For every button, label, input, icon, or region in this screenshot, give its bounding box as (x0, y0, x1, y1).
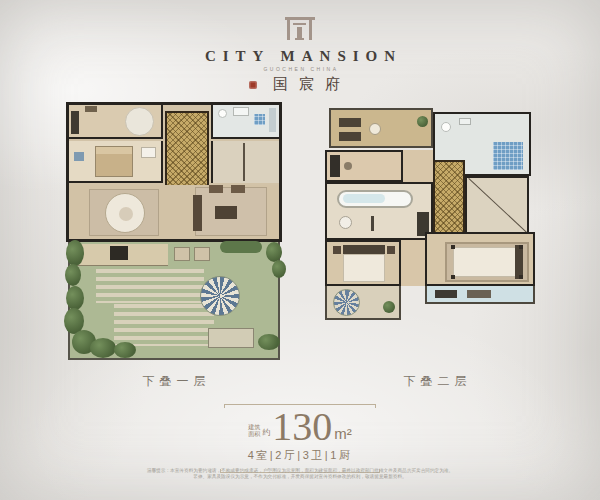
seal-icon (249, 81, 257, 89)
level2-staircase (465, 176, 529, 240)
daybed (95, 146, 133, 177)
shrub (258, 334, 280, 350)
armchair (231, 185, 245, 193)
armchair (209, 185, 223, 193)
canopy-post (451, 245, 455, 249)
area-prefix-line1: 建筑 (248, 424, 260, 431)
level1-staircase (211, 141, 279, 183)
bed-headboard (343, 245, 385, 254)
level2-balcony-left (325, 286, 401, 320)
lounger (339, 132, 361, 141)
level2-bedroom (325, 240, 401, 286)
level2-corridor (401, 240, 425, 286)
brand-gate-icon (0, 14, 600, 44)
desk (141, 147, 156, 158)
balcony-mat (435, 290, 457, 298)
level2-hallway (403, 150, 433, 182)
level2-master-bathroom (325, 182, 433, 240)
potted-plant (383, 301, 395, 313)
level2-terrace (329, 108, 433, 148)
chair (344, 162, 352, 170)
rooms-summary: 4室|2厅|3卫|1厨 (150, 448, 450, 463)
washbasin (459, 118, 471, 125)
shrub (66, 240, 84, 266)
level1-study-room (69, 141, 163, 183)
stair-rail (243, 143, 245, 181)
level1-bathroom (211, 105, 279, 139)
level1-living-dining-room (69, 185, 279, 239)
washbasin (339, 216, 352, 229)
nightstand (333, 246, 341, 254)
area-approx: 约 (262, 427, 270, 438)
level1-garden (68, 242, 280, 360)
plan-label-level1: 下叠一层 (66, 373, 282, 390)
floor-plan-level1 (66, 102, 282, 362)
shower-tile (254, 114, 265, 125)
garden-paving-steps (114, 304, 214, 346)
nightstand (387, 246, 395, 254)
plan-label-level2: 下叠二层 (325, 373, 545, 390)
garden-parasol (200, 276, 240, 316)
level2-study-nook (325, 150, 403, 182)
round-dining-table (105, 193, 145, 233)
planter-box (174, 247, 190, 261)
bed-headboard (515, 245, 523, 279)
terrace-table (369, 123, 381, 135)
garden-pond (208, 328, 254, 348)
header: CITY MANSION GUOCHEN CHINA 国宸府 (0, 14, 600, 94)
poster: CITY MANSION GUOCHEN CHINA 国宸府 (0, 0, 600, 500)
spec-block: 建筑 面积 约 130 m² 4室|2厅|3卫|1厨 (150, 404, 450, 473)
garden-pavilion (110, 246, 128, 260)
lounger (339, 118, 361, 127)
canopy-post (451, 275, 455, 279)
planter-box (194, 247, 210, 261)
level1-bedroom (69, 105, 163, 139)
washbasin (233, 107, 249, 116)
shrub (272, 260, 286, 278)
armchair (74, 152, 84, 161)
garden-paving-steps (96, 269, 204, 303)
floor-lamp (371, 216, 374, 231)
area-prefix-line2: 面积 (248, 431, 260, 438)
area-unit: m² (334, 425, 352, 442)
round-rug (125, 107, 154, 136)
dresser (85, 106, 97, 112)
brand-cn-row: 国宸府 (0, 75, 600, 94)
bed (343, 254, 385, 282)
level2-master-bedroom (425, 232, 535, 286)
toilet (218, 109, 227, 118)
level2-stair-shaft (433, 160, 465, 240)
desk (330, 155, 340, 177)
brand-cn-name: 国宸府 (262, 75, 351, 94)
toilet (441, 122, 451, 132)
bathtub-water (343, 194, 385, 203)
shrub (90, 338, 116, 358)
disclaimer: 温馨提示：本宣传资料为要约邀请，不构成要约或承诺，户型图仅为示意图，面积为建筑面… (39, 468, 561, 480)
wardrobe (71, 111, 79, 134)
canopy-post (519, 245, 523, 249)
canopy-post (519, 275, 523, 279)
hedge (220, 241, 262, 253)
balcony-mat (467, 290, 491, 298)
shrub (266, 242, 282, 262)
floor-plan-level2 (325, 108, 545, 320)
shrub (66, 286, 84, 310)
round-patterned-rug (333, 289, 360, 316)
shower-tile (493, 142, 523, 170)
shrub (114, 342, 136, 358)
area-prefix: 建筑 面积 (248, 424, 260, 438)
coffee-table (215, 206, 237, 219)
sofa (193, 195, 202, 231)
area-row: 建筑 面积 约 130 m² (150, 409, 450, 445)
bed (453, 247, 519, 277)
brand-name: CITY MANSION (0, 48, 600, 65)
potted-plant (417, 116, 428, 127)
level2-balcony-right (425, 286, 535, 304)
level1-indoor-area (66, 102, 282, 242)
bath-counter (269, 108, 276, 132)
brand-tagline: GUOCHEN CHINA (0, 66, 600, 72)
shrub (65, 264, 81, 286)
disclaimer-line2: 装修、家具及陈设仅为示意，不作为交付标准，开发商保留对宣传资料修改的权利，敬请留… (39, 474, 561, 480)
area-value: 130 (272, 409, 332, 445)
